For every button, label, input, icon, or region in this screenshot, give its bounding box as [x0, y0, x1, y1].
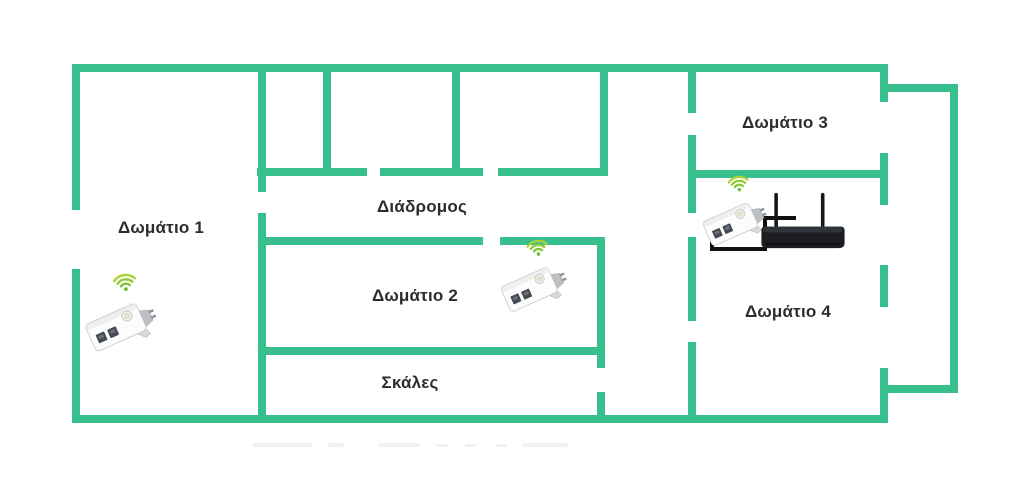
faded-text-artifact [327, 443, 344, 447]
faded-text-artifact [495, 444, 507, 447]
router-icon [760, 190, 846, 256]
faded-text-artifact [465, 444, 477, 447]
wifi-adapter-icon [494, 240, 572, 318]
faded-text-artifact [253, 443, 313, 447]
faded-text-artifact [522, 443, 568, 447]
floor-plan: Δωμάτιο 1 Διάδρομος Δωμάτιο 2 Σκάλες Δωμ… [0, 0, 1024, 493]
faded-text-artifact [435, 444, 449, 447]
faded-text-artifact [378, 443, 420, 447]
wifi-adapter-icon [78, 274, 162, 358]
